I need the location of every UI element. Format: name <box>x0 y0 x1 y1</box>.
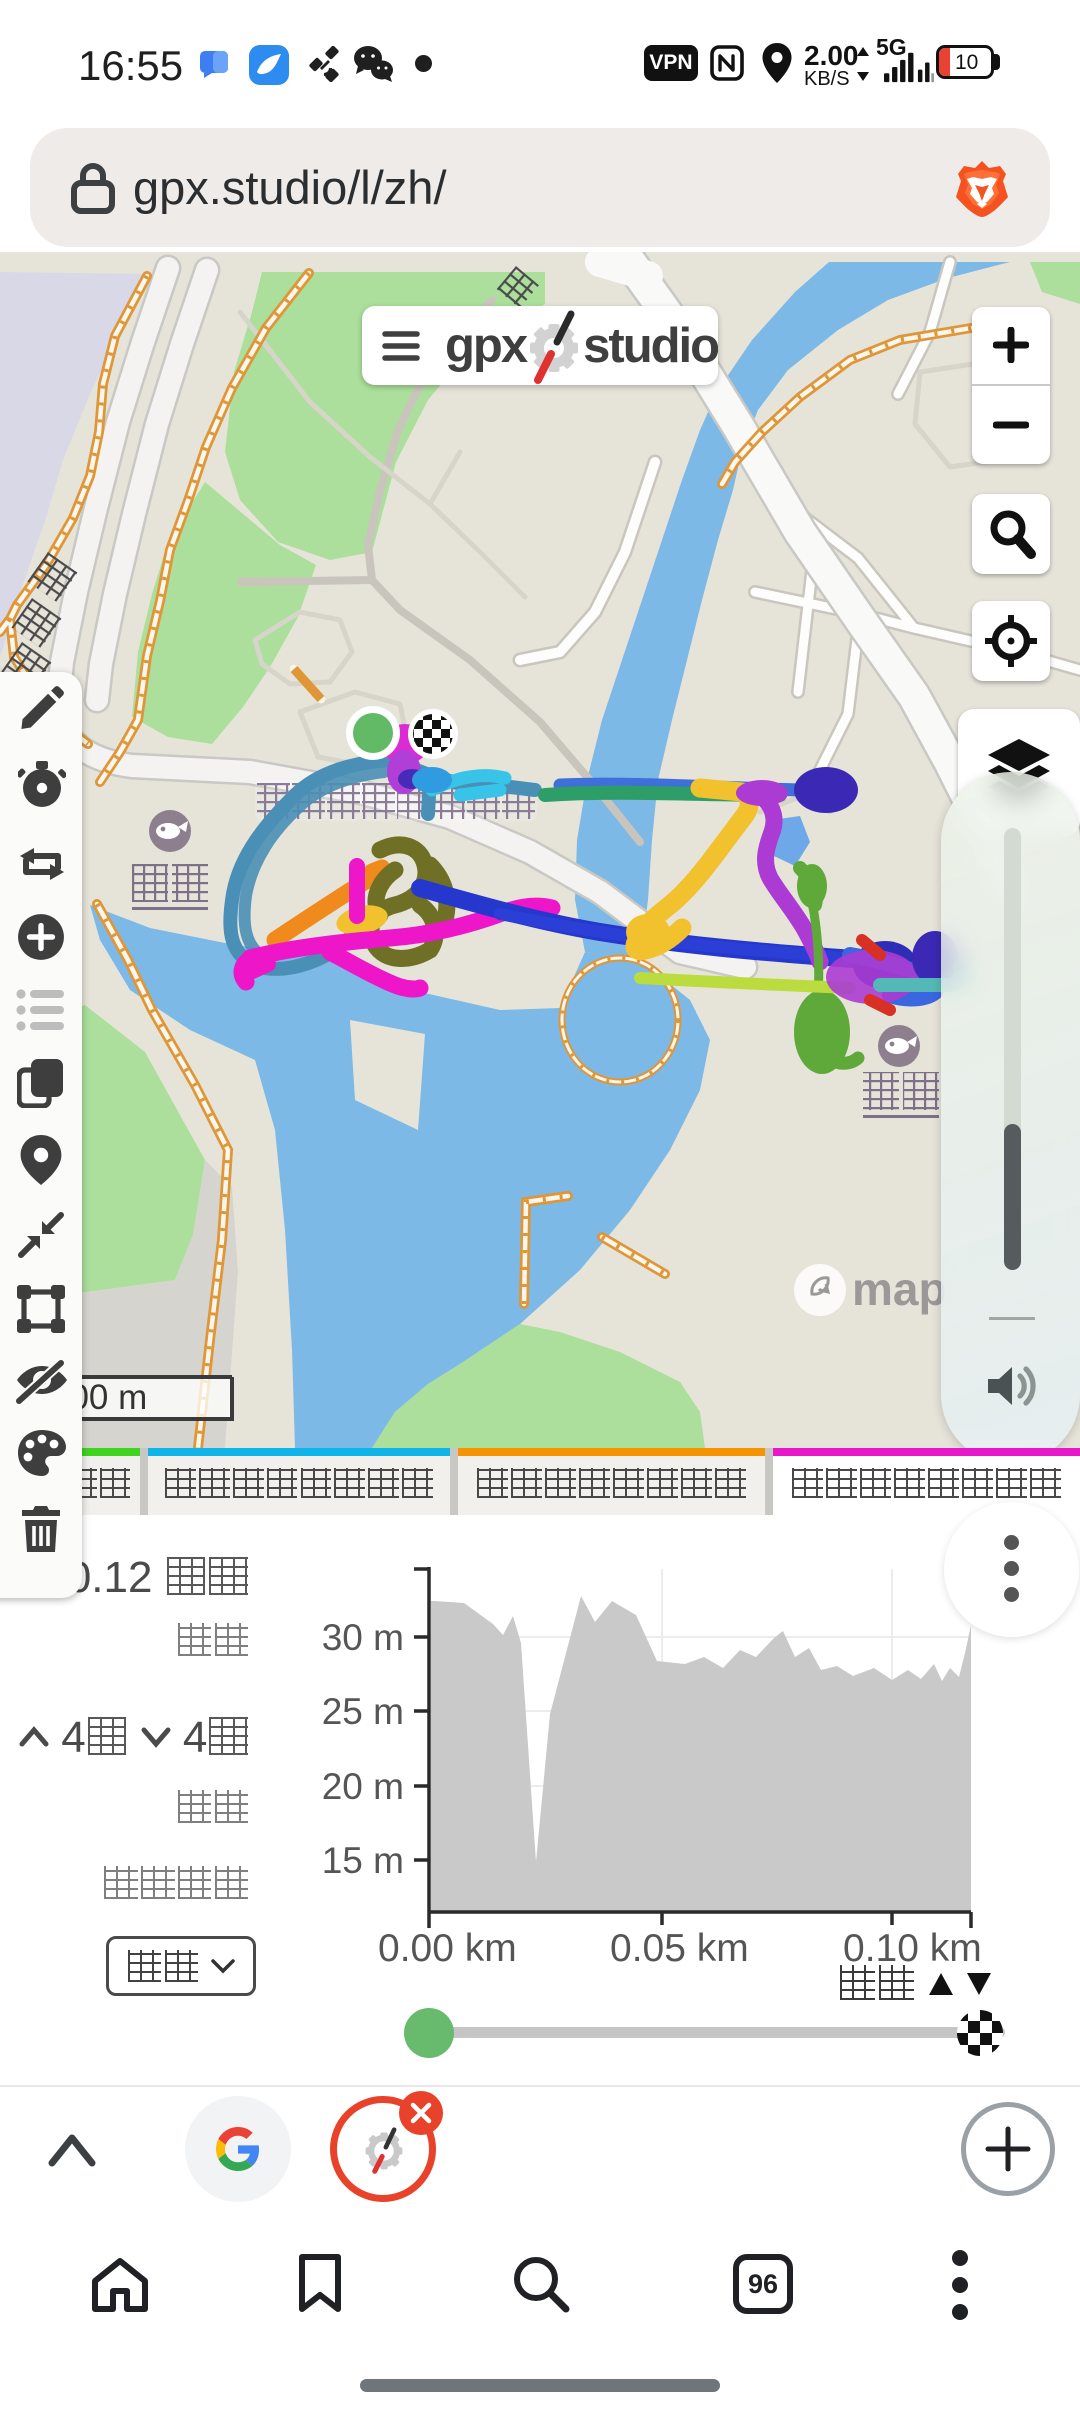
svg-text:0.00 km: 0.00 km <box>378 1927 517 1970</box>
svg-text:30 m: 30 m <box>322 1617 404 1658</box>
svg-text:0.05 km: 0.05 km <box>610 1927 749 1970</box>
svg-text:25 m: 25 m <box>322 1691 404 1732</box>
svg-text:20 m: 20 m <box>322 1766 404 1807</box>
svg-text:map: map <box>852 1263 947 1315</box>
svg-text:15 m: 15 m <box>322 1840 404 1881</box>
